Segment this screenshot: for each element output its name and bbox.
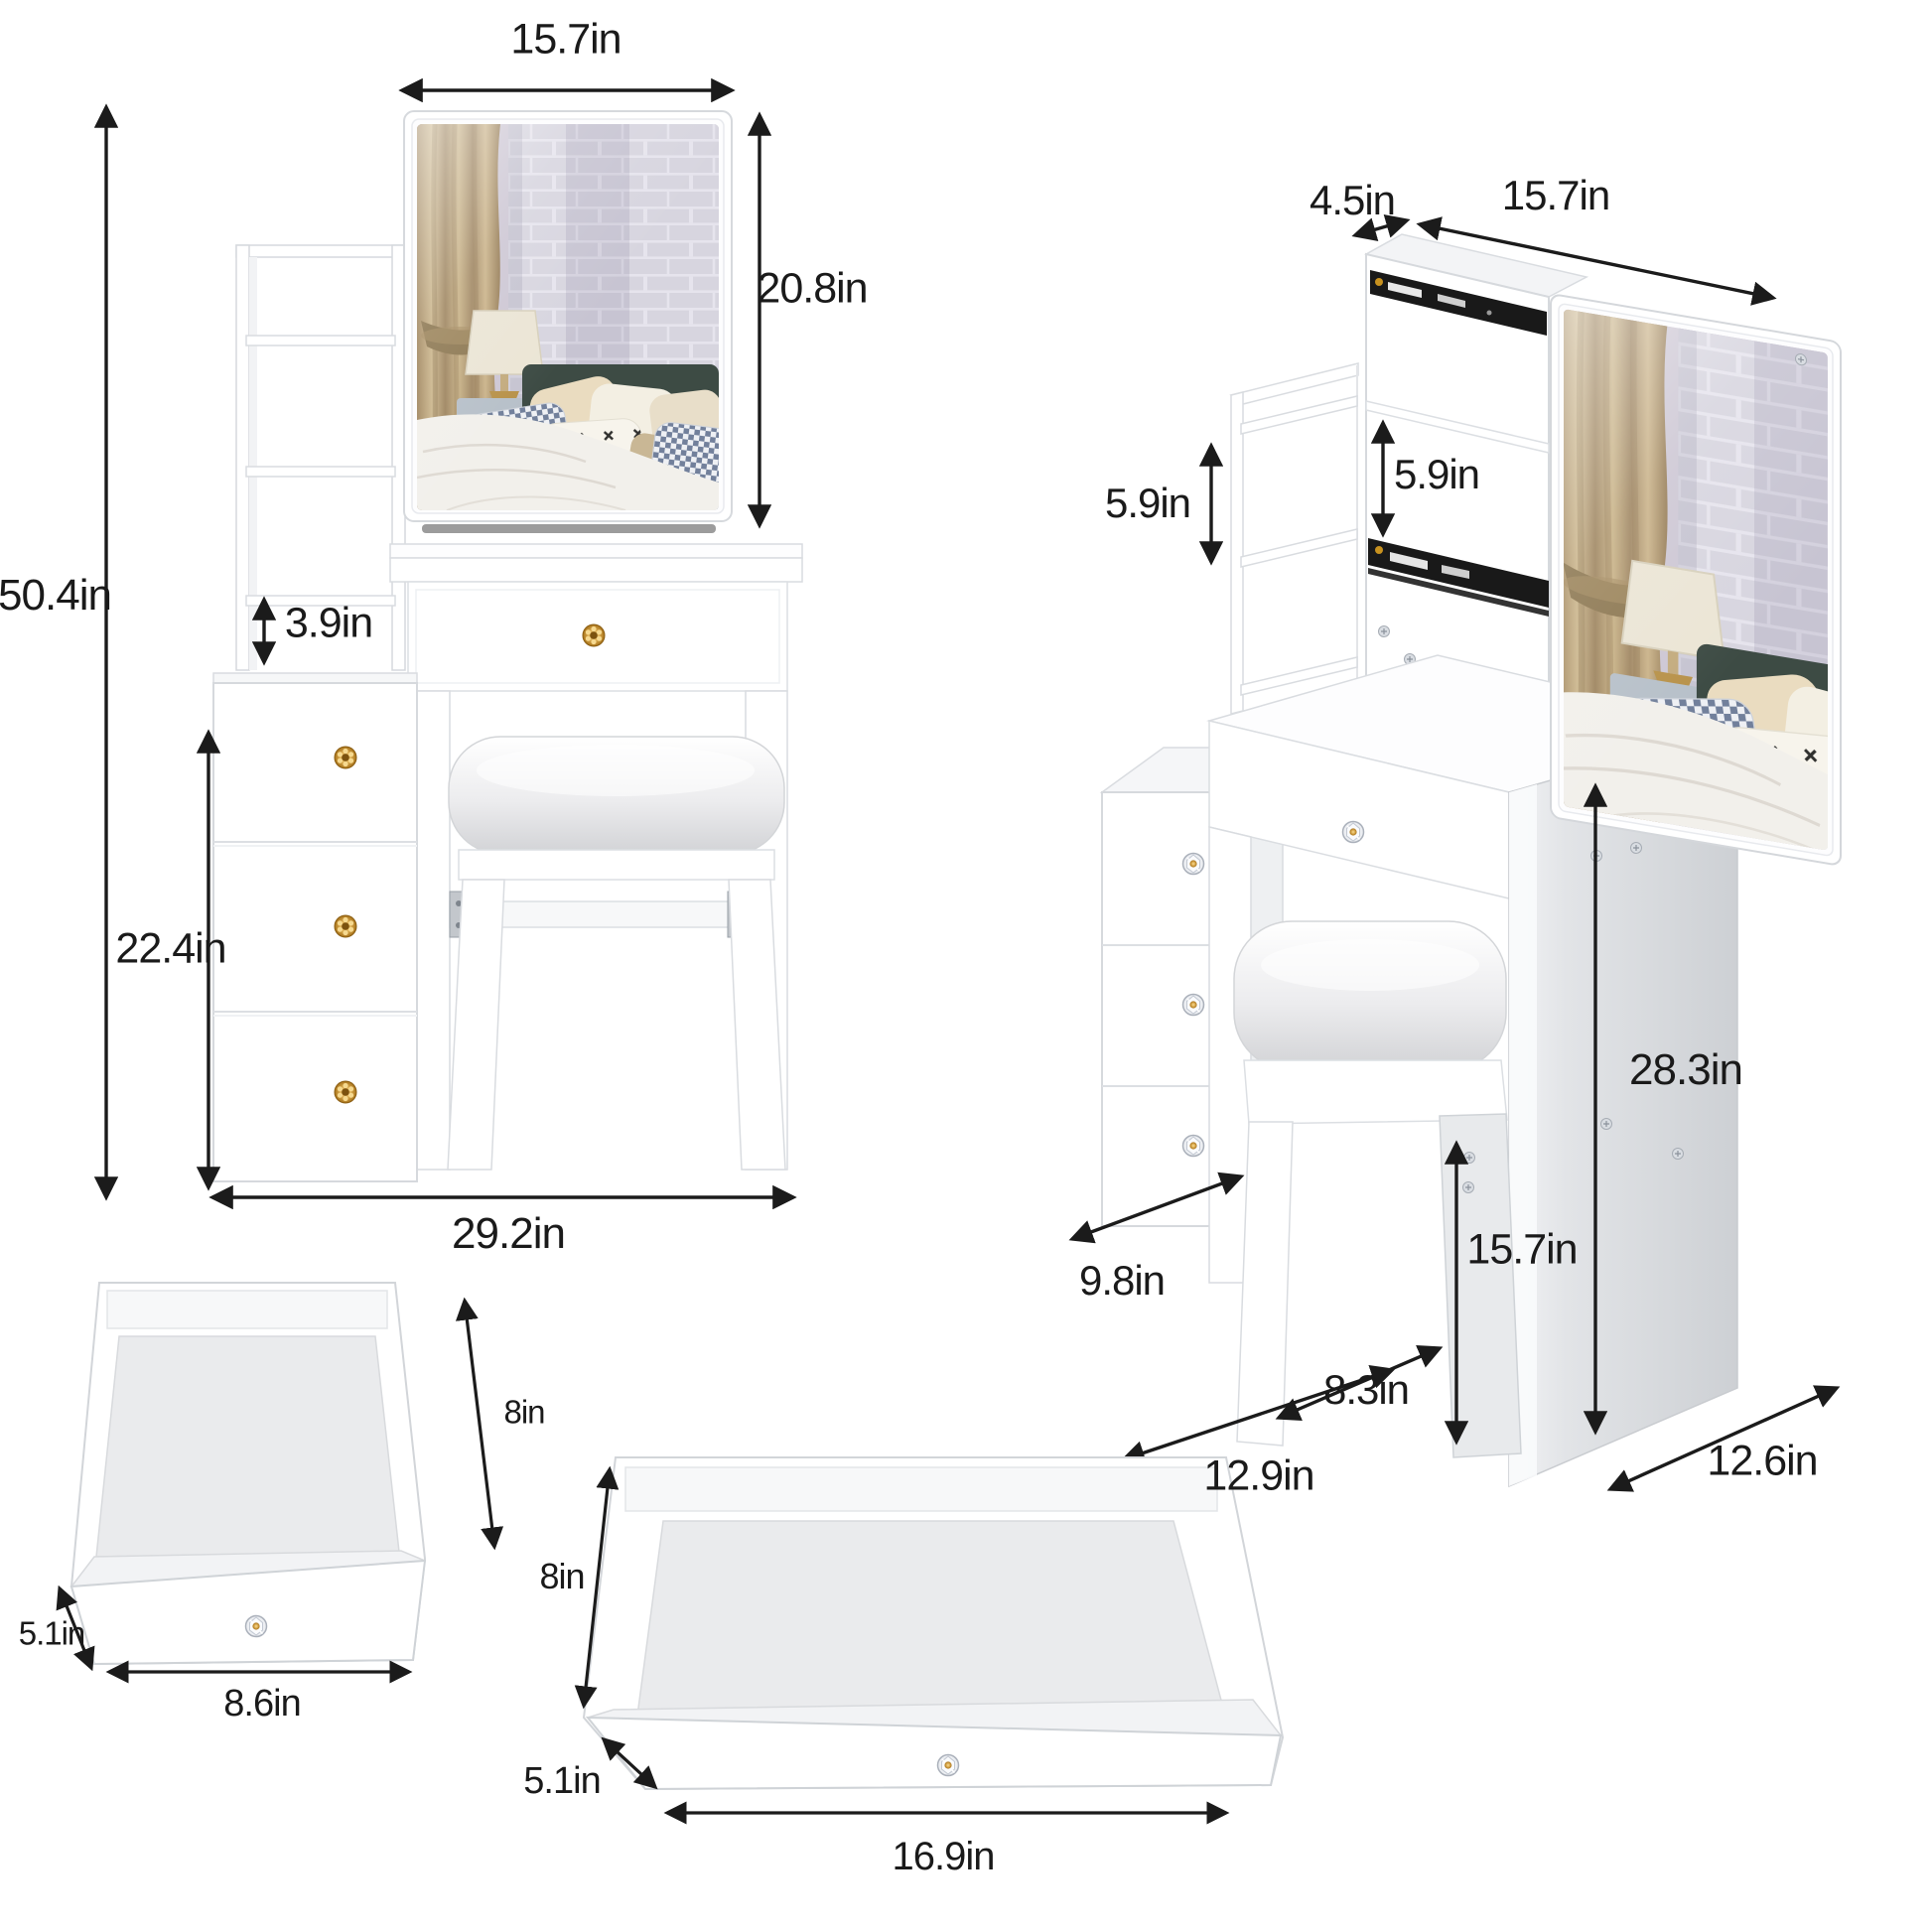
dim-label-side-stool-depth: 8.3in (1323, 1369, 1409, 1411)
front-desk-top (390, 544, 802, 558)
diagram-artwork (0, 0, 1932, 1932)
dim-label-front-total-width: 29.2in (452, 1212, 565, 1256)
side-mirror-photo (1558, 302, 1932, 893)
dim-label-front-total-height: 50.4in (0, 574, 111, 618)
large-drawer-floor (637, 1521, 1223, 1716)
front-view (106, 90, 802, 1197)
large-drawer-box (584, 1457, 1283, 1813)
side-cabinet-knob-1 (1183, 854, 1204, 875)
side-stool-leg-right (1440, 1114, 1521, 1457)
dim-label-side-table-height: 28.3in (1629, 1048, 1742, 1092)
side-cabinet-knob-3 (1183, 1136, 1204, 1157)
front-stool (448, 737, 785, 1170)
dim-label-side-mirror-width: 15.7in (1502, 175, 1609, 216)
dim-label-side-stool-height: 15.7in (1466, 1229, 1577, 1272)
dim-label-small-drawer-width: 8.6in (223, 1685, 300, 1723)
dim-label-small-drawer-depth: 8in (503, 1396, 544, 1429)
dim-label-side-left-shelf-gap: 5.9in (1105, 483, 1190, 524)
small-drawer-knob (246, 1616, 267, 1637)
large-drawer-back-wall (625, 1467, 1217, 1511)
large-drawer-knob (938, 1755, 959, 1776)
front-shelf-1 (246, 336, 395, 345)
dim-label-large-drawer-depth: 8in (539, 1559, 584, 1594)
front-mirror-photo (417, 124, 746, 516)
dim-label-front-shelf-gap: 3.9in (285, 603, 372, 645)
product-dimension-diagram: 15.7in 20.8in 50.4in 3.9in 22.4in 29.2in… (0, 0, 1932, 1932)
front-mirror (404, 111, 746, 521)
side-view (1072, 220, 1932, 1489)
front-cabinet-knob-3 (335, 1081, 356, 1103)
front-shelf-2 (246, 467, 395, 477)
dim-label-side-right-shelf-gap: 5.9in (1394, 454, 1479, 495)
side-desk-leg-left (1209, 827, 1251, 1283)
dim-label-side-cabinet-depth: 9.8in (1079, 1260, 1165, 1302)
dim-label-front-mirror-width: 15.7in (510, 19, 621, 62)
side-shelf-1 (1241, 396, 1357, 434)
small-drawer-back-wall (107, 1291, 387, 1328)
dim-label-front-mirror-height: 20.8in (757, 268, 867, 311)
side-shelf-2 (1241, 529, 1357, 567)
dim-label-large-drawer-height: 5.1in (523, 1762, 600, 1800)
dim-label-side-table-depth: 12.6in (1707, 1441, 1817, 1483)
side-desk-drawer-knob (1343, 822, 1364, 843)
front-desk-drawer-knob (583, 624, 605, 646)
dim-label-side-stool-width: 12.9in (1203, 1455, 1313, 1498)
dim-label-small-drawer-height: 5.1in (19, 1617, 85, 1650)
front-cabinet (213, 673, 417, 1181)
side-mirror (1551, 294, 1932, 893)
dim-label-front-cabinet-height: 22.4in (115, 928, 225, 971)
front-cabinet-knob-2 (335, 915, 356, 937)
dim-arrow-small-drawer-depth (465, 1301, 494, 1547)
dim-label-side-top-depth: 4.5in (1310, 180, 1395, 221)
small-drawer-floor (96, 1336, 399, 1557)
dim-label-large-drawer-width: 16.9in (893, 1837, 995, 1876)
front-mirror-base-shadow (422, 524, 716, 533)
side-shelf-tower (1231, 363, 1358, 714)
small-drawer-box (60, 1283, 494, 1672)
side-cabinet-knob-2 (1183, 995, 1204, 1016)
front-cabinet-knob-1 (335, 747, 356, 768)
